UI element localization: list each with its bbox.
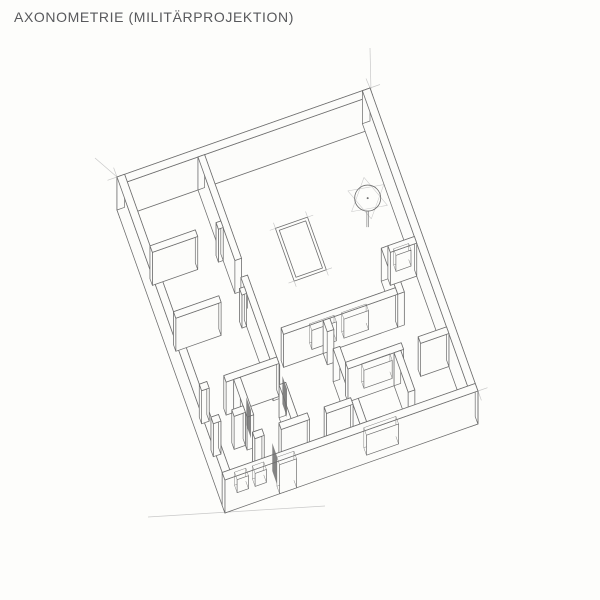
page-background: AXONOMETRIE (MILITÄRPROJEKTION) xyxy=(0,0,600,600)
axonometric-floor-plan-drawing xyxy=(0,0,600,600)
page-title: AXONOMETRIE (MILITÄRPROJEKTION) xyxy=(14,9,294,25)
